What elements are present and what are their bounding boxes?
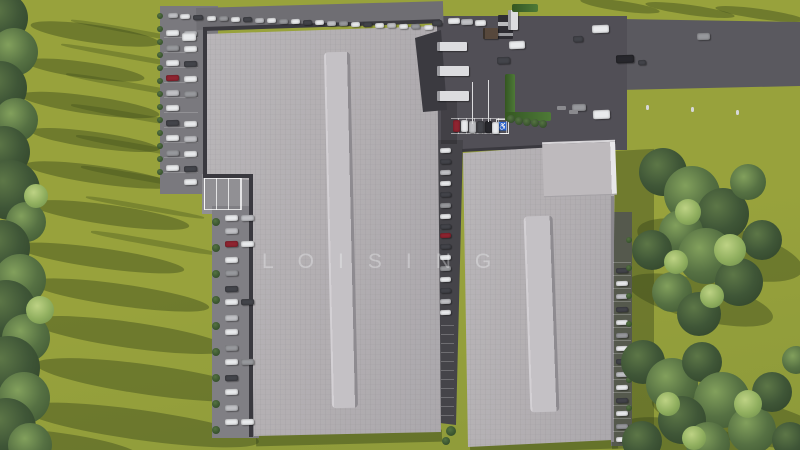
- car: [166, 150, 179, 156]
- car: [166, 60, 179, 66]
- car: [184, 61, 197, 67]
- car: [616, 333, 628, 338]
- bush: [507, 115, 515, 123]
- tree-shadow: [24, 156, 175, 195]
- car: [327, 21, 336, 26]
- tree: [682, 426, 706, 450]
- bench: [569, 110, 578, 114]
- car: [573, 36, 583, 42]
- bush: [212, 374, 220, 382]
- tree-shadow: [29, 308, 231, 362]
- bush: [157, 13, 163, 19]
- car: [180, 14, 190, 19]
- car: [184, 166, 197, 172]
- car: [616, 411, 628, 416]
- car: [166, 75, 179, 81]
- car: [166, 30, 179, 36]
- car: [166, 120, 179, 126]
- truck: [437, 66, 469, 76]
- car: [182, 33, 196, 41]
- car: [440, 277, 451, 282]
- flag-pole: [488, 80, 489, 122]
- car: [225, 389, 238, 395]
- car: [241, 359, 254, 365]
- car: [225, 228, 238, 234]
- parking-line-markings-mid: [441, 318, 454, 424]
- car: [616, 307, 628, 312]
- car: [241, 241, 254, 247]
- car: [485, 121, 492, 133]
- car: [241, 215, 254, 221]
- car: [166, 105, 179, 111]
- car: [168, 13, 178, 18]
- car: [166, 165, 179, 171]
- car: [225, 299, 238, 305]
- car: [461, 19, 473, 25]
- bush: [157, 39, 163, 45]
- car: [509, 41, 525, 50]
- bush: [157, 78, 163, 84]
- car: [225, 405, 238, 411]
- truck: [437, 91, 469, 101]
- car: [166, 90, 179, 96]
- car: [448, 18, 460, 24]
- bush: [212, 270, 220, 278]
- car: [440, 203, 451, 208]
- bush: [626, 321, 632, 327]
- bush: [523, 118, 531, 126]
- bush: [212, 426, 220, 434]
- car: [440, 170, 451, 175]
- car: [207, 16, 216, 21]
- car: [440, 288, 451, 293]
- tree: [700, 284, 724, 308]
- bush: [157, 91, 163, 97]
- car: [461, 120, 468, 132]
- car: [697, 33, 710, 40]
- car: [411, 24, 420, 29]
- bench: [557, 106, 566, 110]
- bush: [515, 117, 523, 125]
- car: [225, 419, 238, 425]
- car: [440, 299, 451, 304]
- car: [399, 24, 408, 29]
- car: [184, 91, 197, 97]
- car: [225, 375, 238, 381]
- bush: [212, 348, 220, 356]
- car: [440, 181, 451, 186]
- car: [225, 215, 238, 221]
- car: [440, 159, 451, 164]
- car: [241, 419, 254, 425]
- car: [440, 224, 451, 229]
- bush: [157, 143, 163, 149]
- marked-parking-grid: [204, 178, 242, 210]
- bush: [442, 437, 450, 445]
- car: [592, 25, 609, 34]
- car: [225, 241, 238, 247]
- bush: [531, 119, 539, 127]
- car: [267, 18, 276, 23]
- car: [219, 16, 228, 21]
- tree: [742, 220, 782, 260]
- car: [593, 110, 610, 120]
- car: [616, 55, 634, 64]
- person: [691, 107, 694, 112]
- car: [424, 25, 433, 30]
- car: [440, 148, 451, 153]
- car: [616, 385, 628, 390]
- car: [184, 76, 197, 82]
- bush: [212, 296, 220, 304]
- bush: [157, 117, 163, 123]
- person: [646, 105, 649, 110]
- bush: [212, 218, 220, 226]
- car: [166, 45, 179, 51]
- truck: [483, 28, 498, 39]
- bush: [157, 104, 163, 110]
- car: [440, 214, 451, 219]
- bush: [157, 52, 163, 58]
- car: [184, 136, 197, 142]
- car: [225, 345, 238, 351]
- bush: [212, 400, 220, 408]
- bush: [539, 120, 547, 128]
- car: [375, 23, 384, 28]
- car: [243, 17, 252, 22]
- bush: [626, 293, 632, 299]
- building-1-parapet-west-upper: [203, 28, 207, 178]
- bush: [157, 169, 163, 175]
- car: [225, 329, 238, 335]
- bush: [446, 426, 456, 436]
- truck: [437, 42, 467, 51]
- truck: [508, 10, 518, 30]
- car: [492, 122, 499, 134]
- bush: [626, 405, 632, 411]
- car: [315, 20, 324, 25]
- bush: [212, 244, 220, 252]
- tree: [664, 250, 688, 274]
- car: [303, 20, 312, 25]
- person: [736, 110, 739, 115]
- car: [387, 23, 396, 28]
- car: [225, 315, 238, 321]
- car: [616, 281, 628, 286]
- tree: [734, 390, 762, 418]
- bush: [626, 265, 632, 271]
- car: [241, 299, 254, 305]
- car: [453, 120, 460, 132]
- tree: [730, 164, 766, 200]
- car: [497, 57, 510, 64]
- watermark-text: LOISING: [262, 250, 515, 274]
- bush: [157, 65, 163, 71]
- car: [225, 286, 238, 292]
- car: [440, 244, 451, 249]
- car: [225, 359, 238, 365]
- flag-pole: [472, 82, 473, 124]
- car: [440, 192, 451, 197]
- bush: [157, 156, 163, 162]
- car: [339, 21, 348, 26]
- car: [193, 15, 203, 20]
- tree: [675, 199, 701, 225]
- tree: [26, 296, 54, 324]
- car: [638, 60, 646, 65]
- car: [291, 19, 300, 24]
- car: [225, 257, 238, 263]
- car: [184, 121, 197, 127]
- car: [225, 270, 238, 276]
- car: [279, 19, 288, 24]
- building-2-raised-roof-section: [542, 140, 617, 198]
- tree: [24, 184, 48, 208]
- tree-shadow: [29, 272, 210, 319]
- car: [475, 20, 486, 26]
- bush: [157, 130, 163, 136]
- car: [440, 310, 451, 315]
- bush: [157, 26, 163, 32]
- car: [166, 135, 179, 141]
- tree: [656, 392, 680, 416]
- car: [184, 46, 197, 52]
- car: [432, 20, 442, 26]
- hedge: [512, 4, 538, 12]
- car: [477, 121, 484, 133]
- bush: [212, 322, 220, 330]
- tree: [714, 234, 746, 266]
- car: [440, 233, 451, 238]
- car: [616, 398, 628, 403]
- car: [255, 18, 264, 23]
- bush: [626, 237, 632, 243]
- aerial-site-render: ♿ LOISING: [0, 0, 800, 450]
- car: [351, 22, 360, 27]
- car: [363, 22, 372, 27]
- tree: [782, 346, 800, 374]
- car: [231, 17, 240, 22]
- car: [184, 179, 197, 185]
- car: [184, 151, 197, 157]
